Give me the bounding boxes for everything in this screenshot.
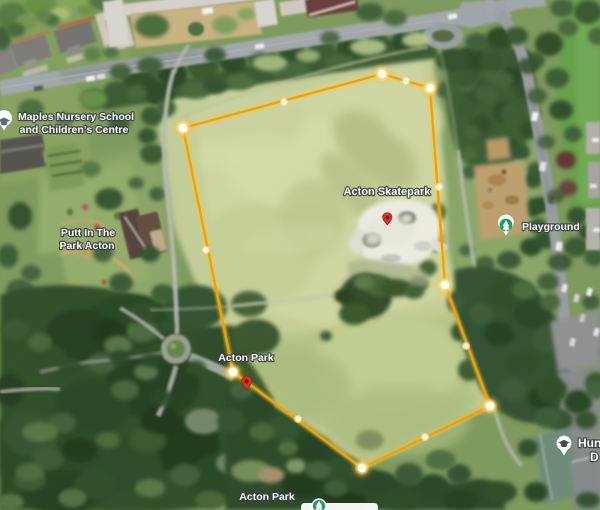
- svg-text:Acton Park: Acton Park: [218, 352, 274, 364]
- svg-text:Putt In The: Putt In The: [61, 227, 115, 239]
- svg-text:Hun: Hun: [578, 436, 600, 450]
- svg-text:Playground: Playground: [522, 221, 580, 233]
- svg-text:D: D: [590, 450, 599, 464]
- svg-text:Acton Park: Acton Park: [239, 491, 295, 503]
- svg-text:and Children’s Centre: and Children’s Centre: [20, 124, 129, 136]
- svg-text:Park Acton: Park Acton: [59, 240, 114, 252]
- svg-text:Maples Nursery School: Maples Nursery School: [18, 111, 134, 123]
- svg-text:Acton Skatepark: Acton Skatepark: [344, 186, 432, 198]
